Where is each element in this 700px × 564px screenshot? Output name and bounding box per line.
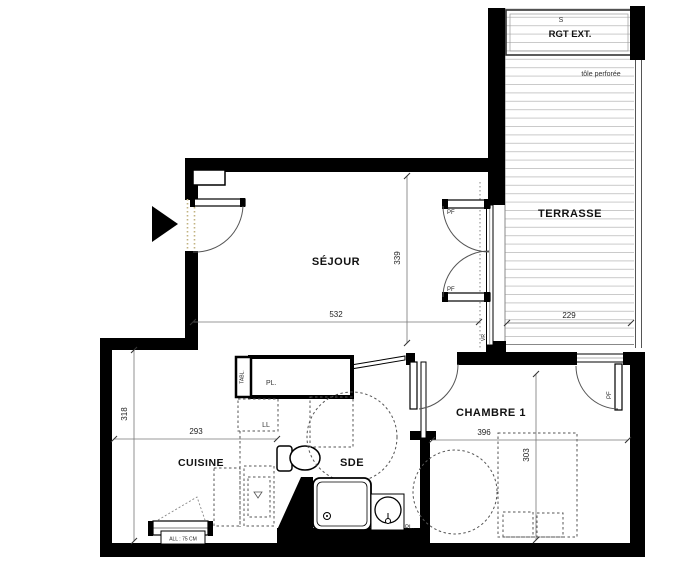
dim-cuisine-depth: 318 bbox=[120, 407, 129, 421]
terrasse-decking bbox=[505, 8, 634, 345]
sde-closet-label: PL. bbox=[266, 380, 277, 387]
sejour-window-wall: PF PF VR bbox=[442, 182, 493, 350]
floor-plan-drawing: S RGT EXT. tôle perforée TERRASSE bbox=[0, 0, 700, 564]
basin-tap bbox=[386, 519, 391, 524]
chambre-label: CHAMBRE 1 bbox=[456, 407, 526, 419]
wall-left-mid bbox=[185, 251, 198, 350]
wall-sde-right bbox=[420, 438, 430, 543]
dim-sejour-width: 532 bbox=[329, 310, 343, 319]
chambre-door-leaf bbox=[410, 362, 417, 409]
window-cap-left bbox=[148, 521, 153, 536]
sde-transfer-area bbox=[310, 397, 353, 447]
sde-label: SDE bbox=[340, 457, 364, 469]
wall-step-out bbox=[100, 338, 192, 350]
washer-spot bbox=[238, 399, 278, 431]
tole-perforee-note: tôle perforée bbox=[581, 71, 620, 78]
window-cap-right bbox=[208, 521, 213, 536]
hall-door-leaf bbox=[351, 356, 405, 369]
chambre-pf-swing-arc bbox=[576, 366, 618, 409]
entrance-door-swing-arc bbox=[193, 206, 243, 252]
sde-area: PL. TABL. LL SDE bbox=[236, 357, 404, 530]
sink-symbol-icon bbox=[254, 492, 262, 498]
sill-note-label: ALL : 75 CM bbox=[169, 537, 197, 543]
entrance-door-cap-right bbox=[240, 198, 245, 207]
vr-label: VR bbox=[481, 334, 487, 341]
wall-sde-chambre-thin bbox=[421, 362, 426, 438]
chambre-closet-label: PL. bbox=[405, 525, 414, 531]
pf-leaf-bottom-cap-r bbox=[484, 292, 490, 302]
cuisine-label: CUISINE bbox=[178, 457, 224, 469]
wall-right bbox=[630, 352, 645, 557]
pf-leaf-top-cap-r bbox=[484, 199, 490, 209]
pf-leaf-bottom bbox=[443, 293, 490, 301]
pf-leaf-top bbox=[443, 200, 490, 208]
electrical-panel-label: TABL. bbox=[240, 370, 246, 384]
counter-left bbox=[214, 468, 240, 526]
wall-duct-notch bbox=[193, 170, 225, 185]
entrance-door bbox=[152, 198, 245, 252]
entrance-door-cap-left bbox=[190, 198, 195, 207]
floor-plan: S RGT EXT. tôle perforée TERRASSE bbox=[0, 0, 700, 564]
wall-bottom bbox=[100, 543, 645, 557]
dim-cuisine-width: 293 bbox=[189, 427, 203, 436]
wall-chambre-top-right bbox=[623, 352, 643, 365]
wall-cuisine-left bbox=[100, 350, 112, 557]
bed-pillow-right bbox=[537, 513, 563, 537]
window-opening-dashed bbox=[158, 497, 205, 520]
terrasse-label: TERRASSE bbox=[538, 208, 602, 220]
entrance-arrow-icon bbox=[152, 206, 178, 242]
shower-drain-dot bbox=[326, 515, 328, 517]
wall-rgt-right bbox=[630, 6, 645, 60]
wall-rgt-left bbox=[488, 8, 505, 205]
toilet-bowl bbox=[290, 446, 320, 470]
rgt-ext-symbol: S bbox=[559, 17, 564, 24]
shower-tray bbox=[313, 478, 371, 530]
terrasse-area: S RGT EXT. tôle perforée TERRASSE bbox=[505, 8, 642, 348]
sejour-label: SÉJOUR bbox=[312, 255, 360, 268]
chambre-pf-leaf bbox=[615, 364, 622, 410]
wall-chambre-top-left bbox=[457, 352, 577, 365]
rgt-ext-label: RGT EXT. bbox=[549, 29, 592, 40]
wall-sejour-top bbox=[185, 158, 490, 172]
pf-top-label: PF bbox=[447, 210, 455, 216]
dim-sejour-depth: 339 bbox=[393, 251, 402, 265]
chambre-area: PL. CHAMBRE 1 bbox=[405, 407, 577, 537]
pf-bottom-label: PF bbox=[447, 287, 455, 293]
cuisine-area: CUISINE ALL : 75 CM bbox=[148, 457, 274, 544]
wall-sde-corner-angled bbox=[277, 477, 313, 530]
dim-chambre-depth: 303 bbox=[522, 448, 531, 462]
washer-label: LL bbox=[262, 422, 270, 429]
dim-terrasse-width: 229 bbox=[562, 311, 576, 320]
dim-chambre-width: 396 bbox=[477, 428, 491, 437]
chambre-pf-label: PF bbox=[607, 391, 613, 399]
bed-pillow-left bbox=[503, 512, 533, 537]
sde-closet bbox=[250, 357, 352, 397]
entrance-door-leaf bbox=[191, 199, 245, 206]
